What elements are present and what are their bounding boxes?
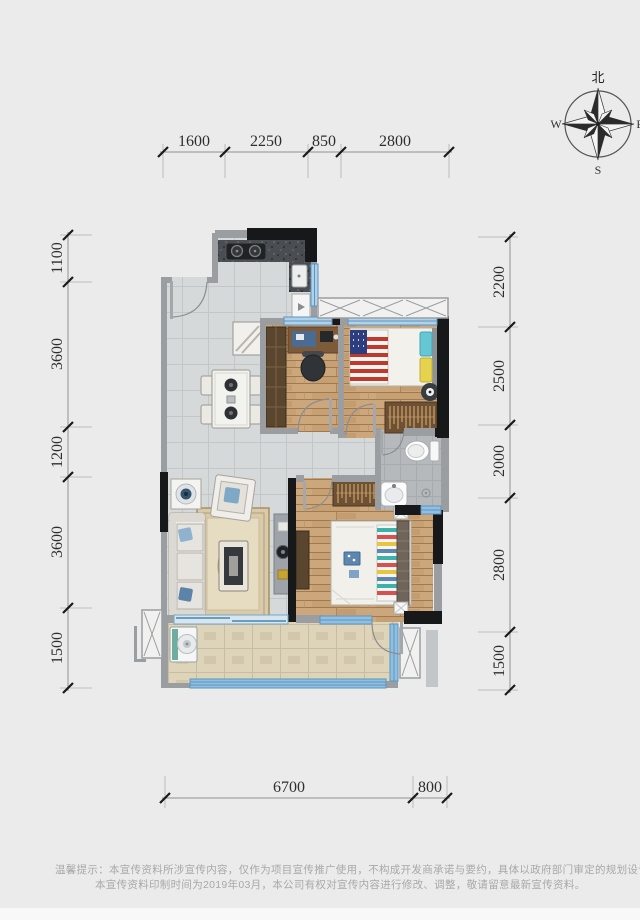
dimension-left: 1100 3600 1200 3600 1500: [49, 230, 92, 693]
side-table-lamp: [171, 479, 201, 509]
dim-label: 2500: [491, 360, 508, 392]
master-dresser: [296, 531, 309, 589]
dim-label: 3600: [49, 526, 66, 558]
compass-south-label: S: [595, 163, 602, 177]
dim-label: 6700: [273, 779, 305, 796]
bookshelf: [266, 327, 286, 427]
disclaimer-line-1: 温馨提示：本宣传资料所涉宣传内容，仅作为项目宣传推广使用，不构成开发商承诺与要约…: [55, 863, 640, 878]
dining-chair: [201, 376, 213, 395]
living-balcony-slider: [174, 615, 288, 624]
balcony: [170, 627, 197, 662]
balcony-floor: [168, 622, 398, 685]
dim-label: 3600: [49, 338, 66, 370]
sink-icon: [381, 482, 407, 506]
dim-label: 1600: [178, 133, 210, 150]
kitchen-window: [311, 264, 318, 306]
sofa: [169, 513, 205, 618]
dim-label: 2800: [491, 549, 508, 581]
flag-blanket: [350, 330, 388, 384]
dim-label: 2250: [250, 133, 282, 150]
stove-icon: [226, 243, 266, 260]
compass-north-label: 北: [591, 71, 604, 86]
footer-band: [0, 908, 640, 920]
striped-pillows: [377, 525, 397, 601]
dimension-top: 1600 2250 850 2800: [158, 133, 454, 178]
dimension-right: 2200 2500 2000 2800 1500: [478, 232, 518, 695]
dining-chair: [249, 376, 261, 395]
dim-label: 1100: [49, 242, 66, 273]
dim-label: 2800: [379, 133, 411, 150]
disclaimer-line-2: 本宣传资料印制时间为2019年03月，本公司有权对宣传内容进行修改、调整，敬请留…: [95, 878, 585, 893]
master-bed: [331, 521, 411, 605]
dim-label: 1200: [49, 436, 66, 468]
fridge: [292, 294, 310, 320]
desk-chair: [301, 351, 325, 381]
compass-east-label: E: [636, 117, 640, 131]
washing-machine-icon: [170, 627, 197, 662]
shoe-cabinet: [233, 322, 263, 355]
ac-ledge-left: [142, 610, 162, 658]
dim-label: 1500: [491, 645, 508, 677]
floor-plan-svg: 1600 2250 850 2800 1100 3600 1200 3600 1…: [0, 0, 640, 920]
dim-label: 1500: [49, 632, 66, 664]
ac-ledge-top: [318, 298, 448, 318]
master-window: [320, 616, 372, 624]
desk: [288, 327, 340, 353]
dimension-bottom: 6700 800: [160, 776, 452, 808]
armchair: [210, 474, 255, 521]
master-wardrobe: [333, 481, 379, 506]
round-stool: [421, 383, 439, 401]
bathroom-window: [421, 506, 441, 514]
dim-label: 850: [312, 133, 336, 150]
dining-chair: [249, 405, 261, 424]
compass-icon: 北 W E S: [550, 71, 640, 177]
bed2: [350, 328, 439, 386]
floor-plan-page: 1600 2250 850 2800 1100 3600 1200 3600 1…: [0, 0, 640, 920]
dim-label: 2200: [491, 266, 508, 298]
compass-west-label: W: [550, 117, 562, 131]
dining-chair: [201, 405, 213, 424]
dim-label: 800: [418, 779, 442, 796]
dim-label: 2000: [491, 445, 508, 477]
balcony-window: [190, 679, 386, 688]
toilet-icon: [405, 441, 439, 461]
